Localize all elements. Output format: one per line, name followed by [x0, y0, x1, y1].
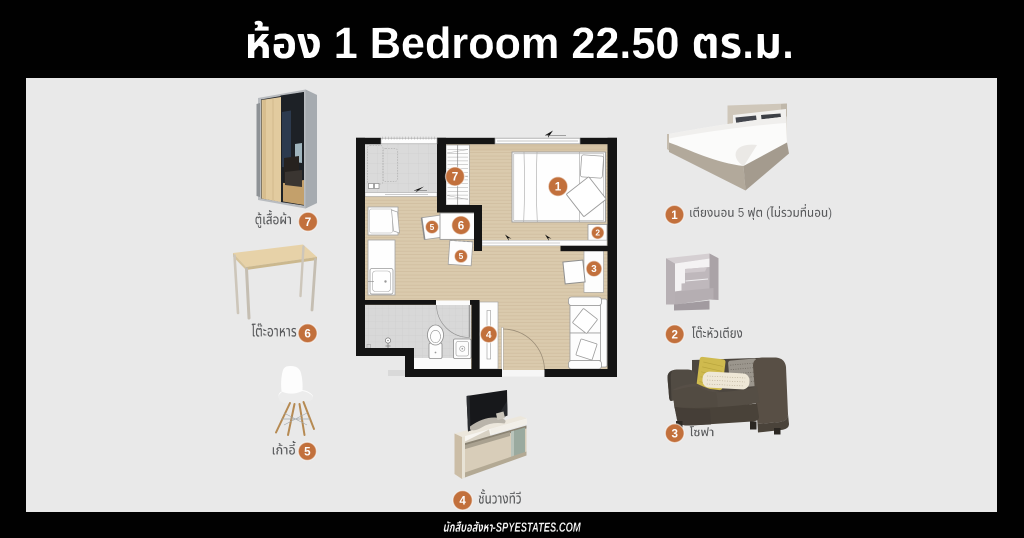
- svg-text:2: 2: [595, 228, 600, 238]
- svg-text:1: 1: [671, 209, 678, 222]
- svg-text:1: 1: [555, 181, 562, 194]
- svg-text:3: 3: [671, 427, 678, 440]
- svg-text:7: 7: [452, 171, 458, 184]
- svg-text:2: 2: [671, 328, 677, 341]
- svg-text:3: 3: [591, 264, 597, 275]
- svg-text:5: 5: [304, 445, 311, 458]
- svg-text:4: 4: [486, 330, 492, 341]
- svg-text:6: 6: [304, 327, 311, 340]
- svg-text:6: 6: [458, 219, 465, 232]
- svg-text:5: 5: [459, 251, 464, 261]
- svg-text:5: 5: [430, 222, 435, 232]
- svg-text:7: 7: [305, 216, 311, 229]
- svg-text:4: 4: [459, 494, 466, 507]
